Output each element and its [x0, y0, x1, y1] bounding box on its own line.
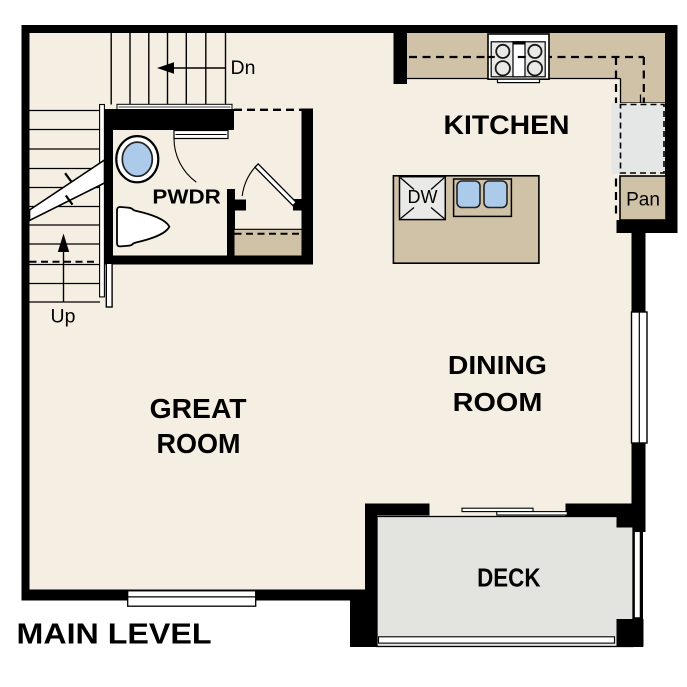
svg-text:KITCHEN: KITCHEN [444, 110, 570, 140]
svg-text:MAIN LEVEL: MAIN LEVEL [17, 618, 212, 650]
svg-text:DW: DW [408, 187, 438, 207]
svg-text:Dn: Dn [231, 57, 256, 79]
svg-text:ROOM: ROOM [157, 428, 241, 459]
svg-text:DECK: DECK [477, 563, 541, 593]
svg-text:Pan: Pan [626, 190, 660, 211]
svg-text:Up: Up [51, 306, 76, 328]
svg-text:ROOM: ROOM [453, 387, 543, 417]
svg-text:PWDR: PWDR [152, 185, 221, 208]
svg-text:GREAT: GREAT [150, 393, 247, 424]
svg-text:DINING: DINING [448, 350, 547, 380]
